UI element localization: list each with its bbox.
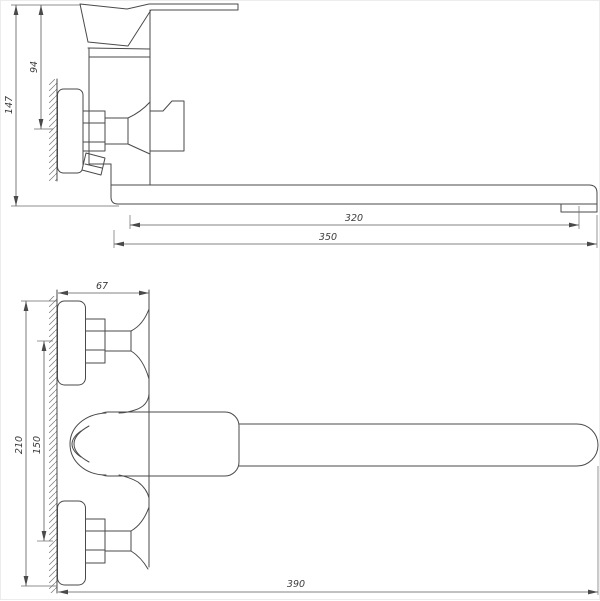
lower-inlet bbox=[58, 501, 150, 585]
dimension-67-label: 67 bbox=[96, 281, 108, 292]
upper-inlet bbox=[58, 301, 150, 385]
dimension-390: 390 bbox=[58, 466, 598, 595]
side-view: 147 94 320 350 bbox=[4, 4, 597, 248]
dimension-320-label: 320 bbox=[345, 213, 363, 224]
dimension-94-label: 94 bbox=[29, 61, 40, 73]
escutcheon-side bbox=[58, 89, 84, 173]
wall-hatch-top bbox=[49, 290, 57, 593]
wall-hatch-side bbox=[49, 79, 57, 181]
connection-tube-side bbox=[105, 102, 150, 154]
dimension-147-label: 147 bbox=[4, 96, 15, 114]
spout-top bbox=[239, 424, 598, 466]
spout-side bbox=[111, 164, 597, 212]
dimension-210-label: 210 bbox=[14, 436, 25, 454]
diverter-block-side bbox=[150, 101, 184, 151]
drawing-canvas: 147 94 320 350 bbox=[0, 0, 600, 600]
dimension-67: 67 bbox=[58, 281, 149, 293]
dimension-150-label: 150 bbox=[32, 436, 43, 454]
top-view: 67 210 150 390 bbox=[14, 281, 598, 595]
handle-top bbox=[70, 413, 106, 475]
faucet-technical-drawing: 147 94 320 350 bbox=[1, 1, 600, 601]
dimension-320: 320 bbox=[130, 206, 579, 229]
dimension-350-label: 350 bbox=[319, 232, 337, 243]
dimension-390-label: 390 bbox=[287, 579, 305, 590]
mixer-body-top bbox=[94, 412, 239, 476]
hex-nut-side bbox=[83, 111, 105, 151]
lever-handle-side bbox=[80, 4, 238, 46]
